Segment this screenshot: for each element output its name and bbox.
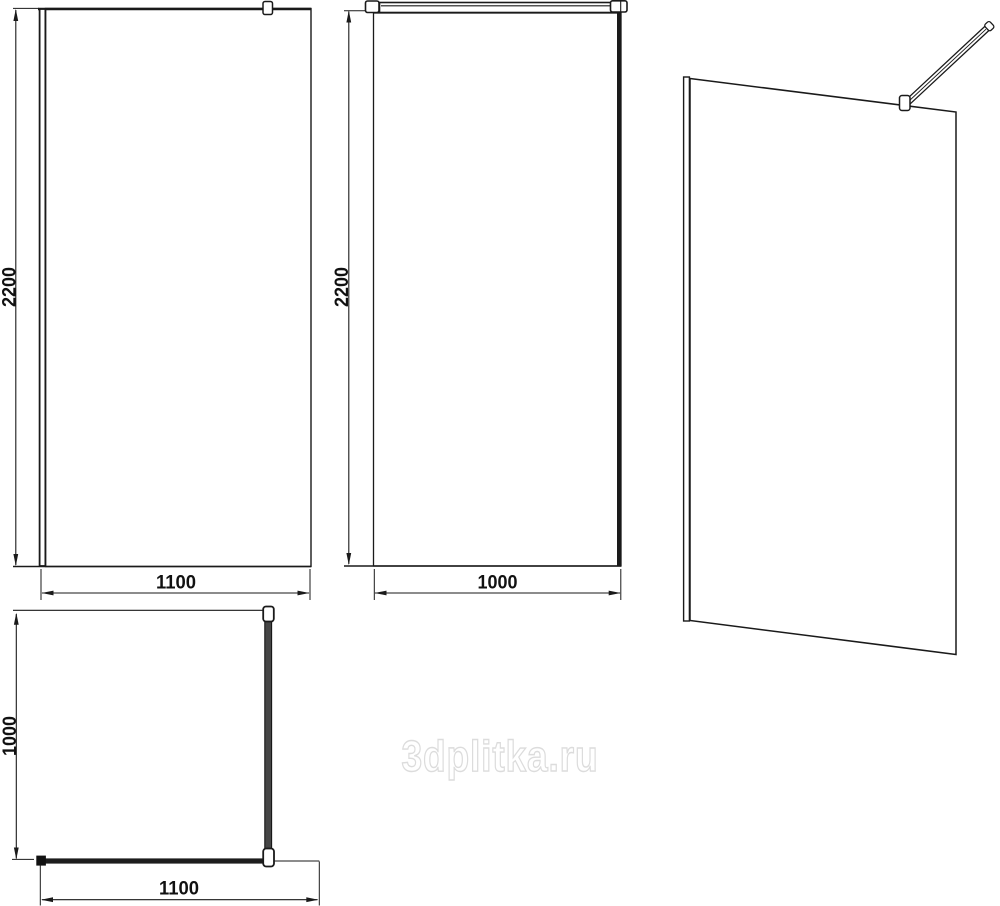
arrowhead [14, 848, 19, 860]
arrowhead [306, 897, 318, 902]
arrowhead [346, 553, 351, 565]
side-wall-bracket [366, 1, 380, 13]
arrowhead [609, 591, 621, 596]
arrowhead [13, 9, 18, 21]
front-bar-bracket [263, 2, 273, 15]
arrowhead [41, 897, 53, 902]
side-panel-area [374, 13, 622, 566]
perspective-wall-profile [684, 77, 690, 621]
watermark-text: 3dplitka.ru [402, 732, 599, 781]
shower-screen-drawing: 3dplitka.ru 2200 1100 [0, 0, 1000, 906]
plan-support-bar [265, 621, 272, 849]
plan-wall-profile [36, 856, 46, 866]
arrowhead [14, 613, 19, 625]
front-width-dimension: 1100 [41, 569, 310, 600]
arrowhead [375, 591, 387, 596]
plan-depth-label: 1000 [0, 716, 21, 756]
plan-width-dimension: 1100 [40, 861, 319, 906]
side-view: 2200 1000 [332, 1, 627, 600]
support-bar-highlight [910, 29, 986, 100]
front-wall-profile [40, 9, 46, 566]
plan-width-label: 1100 [159, 879, 199, 900]
plan-glass-bracket [263, 849, 274, 867]
side-support-bar [380, 3, 613, 13]
plan-view: 1000 1100 [0, 607, 319, 906]
plan-depth-dimension: 1000 [0, 613, 34, 860]
front-width-label: 1100 [156, 573, 196, 594]
front-height-dimension: 2200 [0, 9, 21, 566]
front-view: 2200 1100 [0, 2, 311, 601]
front-glass-panel [46, 9, 312, 567]
side-width-dimension: 1000 [374, 569, 621, 600]
arrowhead [298, 591, 310, 596]
arrowhead [346, 11, 351, 23]
front-height-label: 2200 [0, 267, 21, 307]
arrowhead [13, 554, 18, 566]
arrowhead [42, 591, 54, 596]
side-width-label: 1000 [478, 573, 518, 594]
perspective-glass-panel [690, 79, 956, 655]
technical-drawing-canvas: 3dplitka.ru 2200 1100 [0, 0, 1000, 906]
perspective-view [684, 21, 995, 655]
side-glass-bracket [611, 1, 628, 12]
side-height-dimension: 2200 [332, 11, 365, 566]
side-height-label: 2200 [332, 267, 353, 307]
perspective-support-bar [906, 21, 995, 105]
plan-glass-panel [40, 858, 264, 863]
perspective-bar-bracket [900, 96, 911, 111]
plan-wall-bracket [263, 607, 274, 622]
